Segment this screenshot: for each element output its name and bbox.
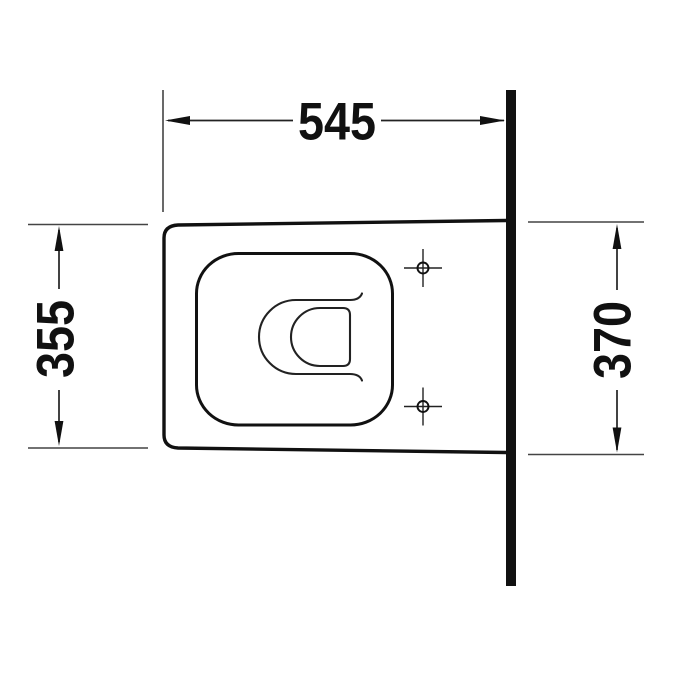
bowl-rim-contour bbox=[259, 294, 362, 381]
toilet-top-view-drawing: 545 355 370 bbox=[0, 0, 700, 700]
mounting-hole-top-icon bbox=[404, 249, 442, 287]
dimension-overall-depth: 545 bbox=[163, 90, 505, 212]
arrow-right-icon bbox=[480, 116, 505, 125]
arrow-up-icon bbox=[55, 226, 64, 251]
arrow-down-icon bbox=[55, 421, 64, 446]
dimension-rear-width: 370 bbox=[528, 222, 644, 455]
dimension-label-front-width: 355 bbox=[27, 300, 86, 378]
wall-section-bar bbox=[506, 90, 516, 586]
bowl-inner-contour bbox=[291, 308, 350, 366]
dimension-label-overall-depth: 545 bbox=[298, 93, 376, 152]
arrow-down-icon bbox=[613, 428, 622, 453]
dimension-label-rear-width: 370 bbox=[584, 301, 643, 379]
arrow-up-icon bbox=[613, 224, 622, 249]
arrow-left-icon bbox=[165, 116, 190, 125]
toilet-seat-outline bbox=[197, 254, 393, 426]
technical-drawing-canvas: 545 355 370 bbox=[0, 0, 700, 700]
mounting-hole-bottom-icon bbox=[404, 388, 442, 426]
dimension-front-width: 355 bbox=[27, 225, 149, 449]
